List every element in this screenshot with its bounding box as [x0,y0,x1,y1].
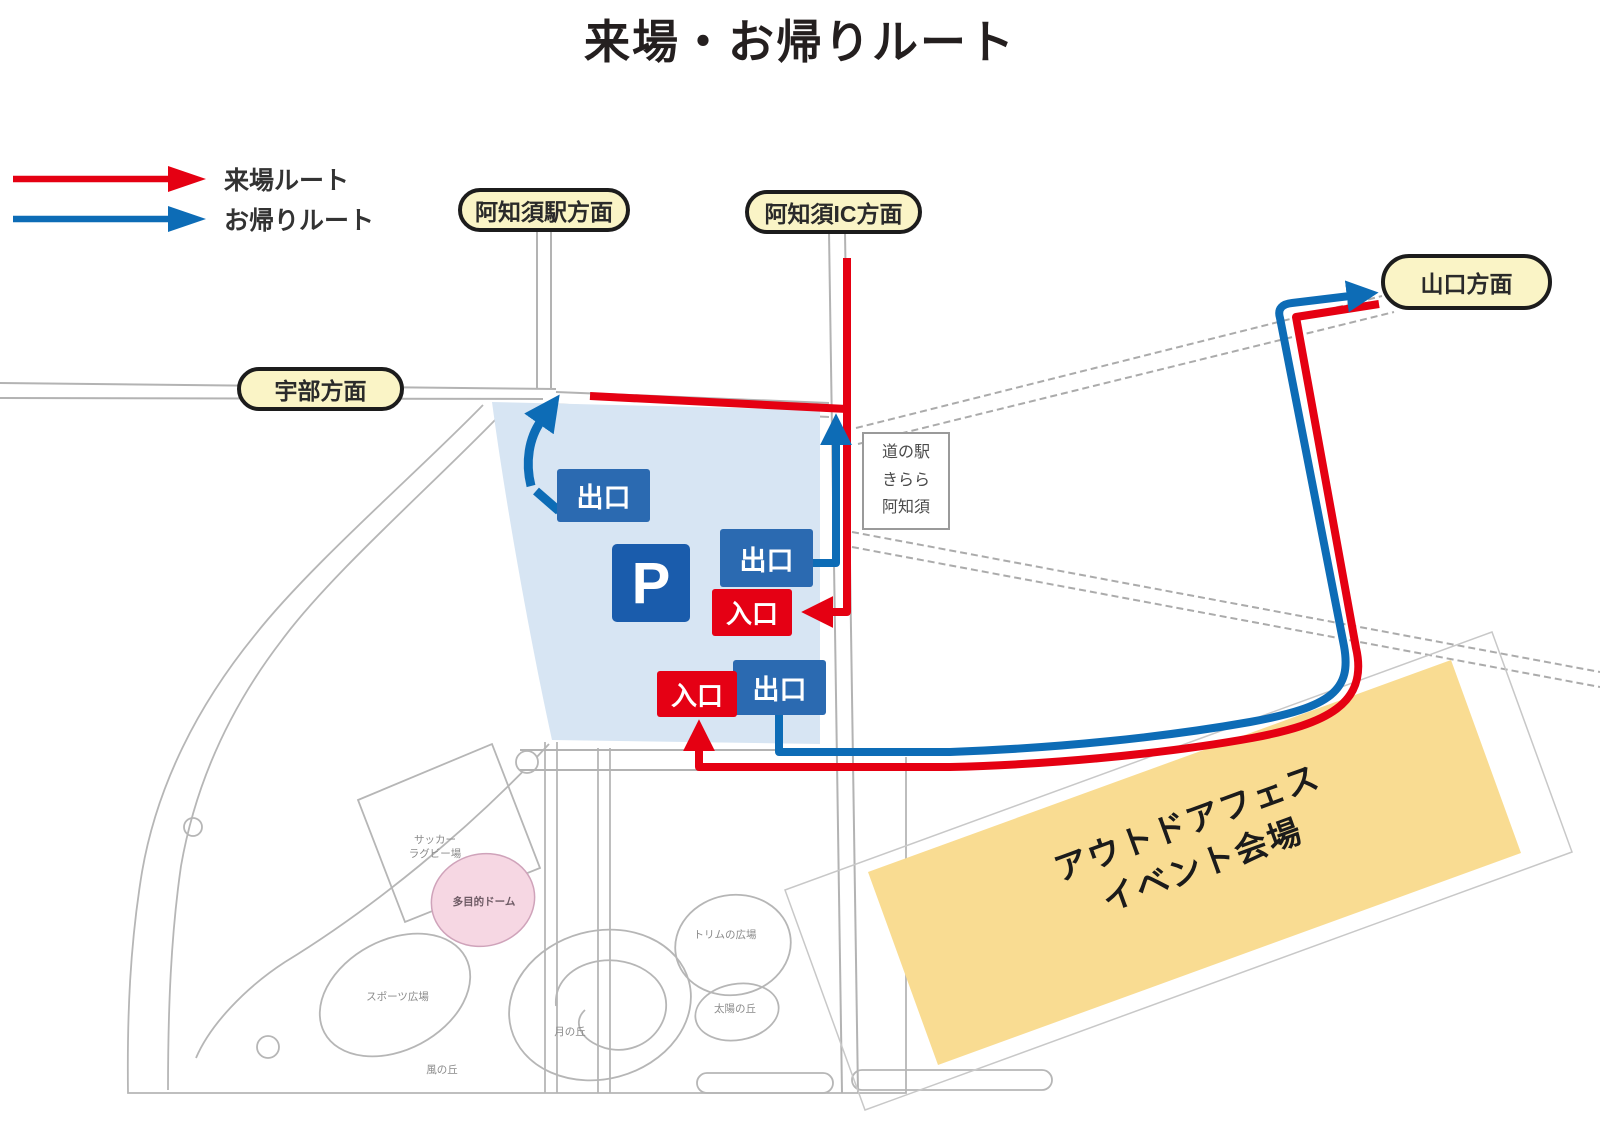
map-label-moon-hill: 月の丘 [540,1025,600,1039]
direction-pill-ube: 宇部方面 [237,367,404,411]
map-label-trim-plaza: トリムの広場 [680,928,770,942]
map-label-sports-plaza: スポーツ広場 [350,990,445,1004]
map-label-wind-hill: 風の丘 [412,1063,472,1077]
roadside-station-box: 道の駅 きらら 阿知須 [862,432,950,530]
exit-badge-east: 出口 [720,529,813,587]
legend-arrival-row: 来場ルート [10,162,374,196]
return-route-arrow-icon [10,204,210,234]
direction-pill-ajisu-ic: 阿知須IC方面 [745,190,922,234]
map-label-soccer-rugby: サッカー ラグビー場 [385,833,485,861]
page-title: 来場・お帰りルート [0,6,1600,72]
legend-arrival-label: 来場ルート [224,161,349,197]
parking-sign: P [612,544,690,622]
map-label-sun-hill: 太陽の丘 [700,1002,770,1016]
entrance-badge-east: 入口 [712,589,792,636]
arrival-route-arrow-icon [10,164,210,194]
direction-pill-ajisu-station: 阿知須駅方面 [458,188,630,232]
exit-badge-northwest: 出口 [557,469,650,522]
direction-pill-yamaguchi: 山口方面 [1381,254,1552,310]
map-label-dome: 多目的ドーム [438,895,530,909]
entrance-badge-south: 入口 [657,671,737,717]
legend-return-label: お帰りルート [224,201,374,237]
legend-return-row: お帰りルート [10,202,374,236]
exit-badge-south: 出口 [733,660,826,715]
legend: 来場ルート お帰りルート [10,162,374,242]
